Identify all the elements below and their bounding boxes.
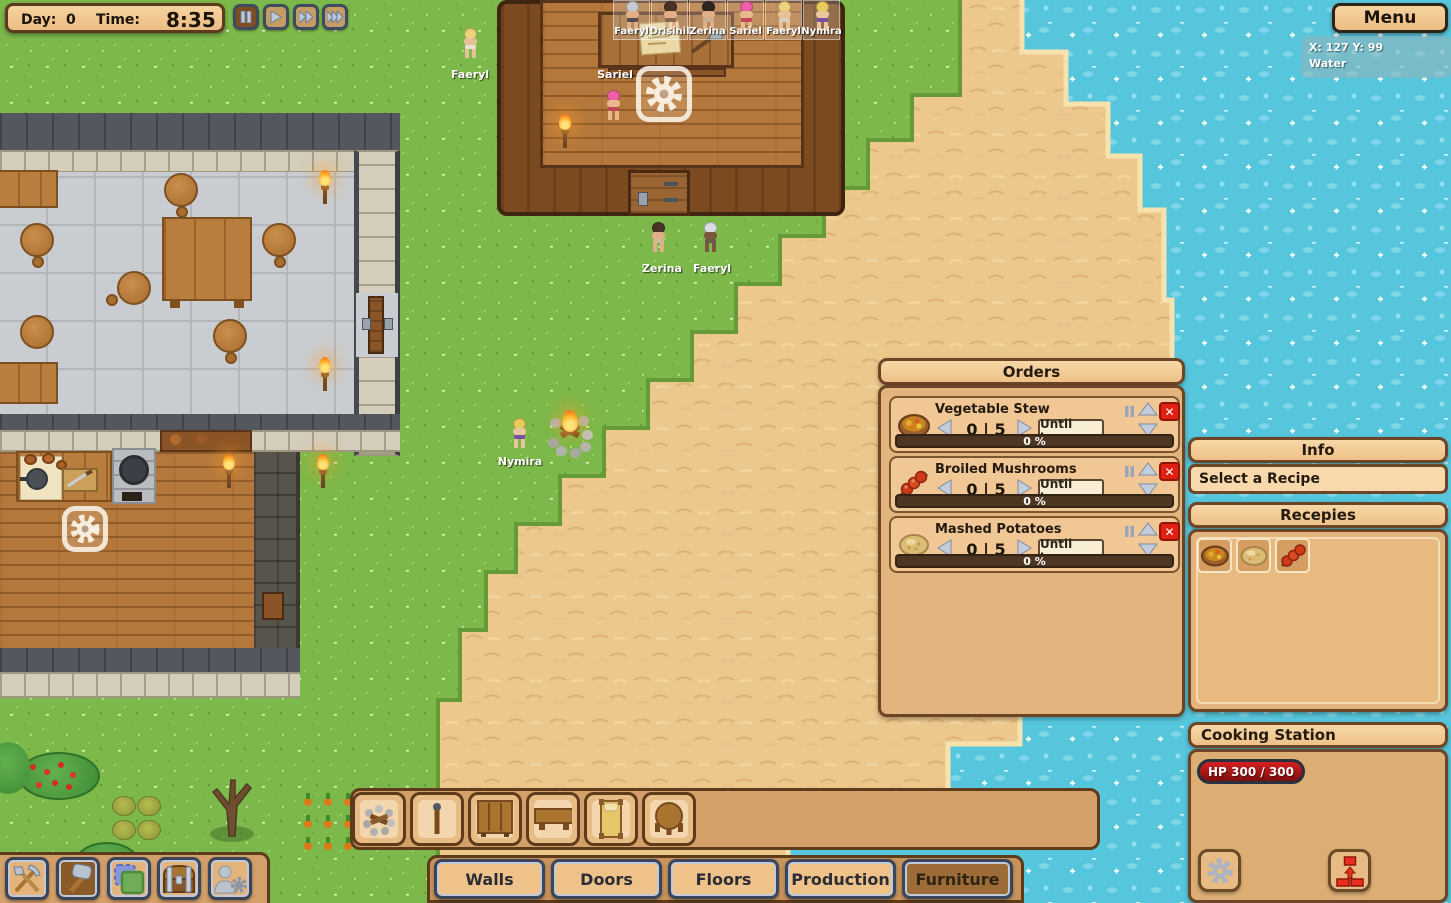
dresser-icon: [476, 800, 514, 838]
menu-button[interactable]: Menu: [1332, 3, 1448, 33]
order-row: Mashed Potatoes ✕ 0 | 5 Until have 0 %: [889, 516, 1180, 573]
long-table: [0, 362, 58, 404]
order-row: Broiled Mushrooms ✕ 0 | 5 Until have 0 %: [889, 456, 1180, 513]
wall-torch: [560, 122, 570, 148]
round-table: [213, 319, 247, 353]
colonist-slot-zerina[interactable]: Zerina: [689, 0, 726, 40]
order-name: Broiled Mushrooms: [935, 462, 1077, 477]
stool: [274, 256, 286, 268]
cancel-order-button[interactable]: ✕: [1159, 402, 1180, 421]
round-table: [262, 223, 296, 257]
table-leg: [170, 299, 180, 308]
tool-harvest[interactable]: [5, 857, 49, 900]
pause-button[interactable]: [233, 4, 259, 30]
kitchen-east-wall: [254, 452, 300, 672]
order-progress-bar: 0 %: [895, 434, 1174, 448]
build-item-torch[interactable]: [410, 792, 464, 846]
campfire[interactable]: [548, 410, 592, 454]
round-table: [117, 271, 151, 305]
tool-build[interactable]: [56, 857, 100, 900]
wall-torch: [318, 462, 328, 488]
shelf-pot: [196, 434, 207, 445]
dining-north-wall: [0, 113, 400, 152]
info-panel-body: Select a Recipe: [1188, 464, 1448, 494]
game-screen: Faeryl Sariel Zerina Faeryl Nymira Faery…: [0, 0, 1451, 903]
fast-forward-button[interactable]: [293, 4, 319, 30]
gear-icon: [67, 511, 103, 547]
move-order-up-button[interactable]: [1138, 522, 1158, 536]
tool-zones[interactable]: [107, 857, 151, 900]
order-progress-bar: 0 %: [895, 554, 1174, 568]
round-table: [20, 223, 54, 257]
chest-icon: [161, 863, 197, 895]
person-gear-icon: [212, 863, 248, 895]
station-panel: HP 300 / 300: [1188, 749, 1448, 903]
round-table: [164, 173, 198, 207]
build-item-campfire[interactable]: [352, 792, 406, 846]
tab-furniture[interactable]: Furniture: [902, 859, 1013, 899]
time-label: Time:: [96, 12, 140, 28]
tile-tooltip: X: 127 Y: 99 Water: [1301, 36, 1451, 78]
zones-icon: [112, 862, 146, 896]
colonist-name: Faeryl: [766, 26, 801, 37]
time-value: 8:35: [166, 8, 216, 32]
fast-forward-icon: [299, 11, 313, 23]
door-hinge: [664, 198, 678, 202]
shelf-pot: [170, 434, 181, 445]
character-zerina[interactable]: [649, 222, 667, 254]
tooltip-terrain: Water: [1309, 57, 1443, 70]
wall-torch: [320, 178, 330, 204]
door-hinge: [664, 182, 678, 186]
character-name-label: Faeryl: [451, 68, 489, 81]
kitchen-south-wall: [0, 648, 300, 672]
wall-torch: [224, 462, 234, 488]
campfire-icon: [361, 801, 397, 837]
oven-mouth: [122, 492, 142, 501]
info-message: Select a Recipe: [1199, 471, 1320, 487]
character-name-label: Faeryl: [693, 262, 731, 275]
cancel-order-button[interactable]: ✕: [1159, 522, 1180, 541]
tool-stockpile[interactable]: [157, 857, 201, 900]
move-order-up-button[interactable]: [1138, 402, 1158, 416]
vegetable-stew-icon: [1200, 543, 1230, 569]
table-leg: [234, 299, 244, 308]
pause-order-icon[interactable]: [1124, 526, 1135, 537]
pan-handle: [20, 477, 28, 481]
clay-pot: [24, 454, 37, 465]
wall-torch: [320, 365, 330, 391]
day-label: Day:: [21, 12, 56, 28]
character-sariel[interactable]: [604, 90, 622, 122]
stool: [176, 206, 188, 218]
colonist-slot-sariel[interactable]: Sariel: [727, 0, 764, 40]
orders-panel: Vegetable Stew ✕ 0 | 5 Until have 0 % Br…: [878, 385, 1185, 717]
fastest-forward-icon: [327, 11, 344, 23]
dead-tree: [200, 768, 264, 844]
build-item-bed[interactable]: [584, 792, 638, 846]
tab-label: Production: [791, 870, 889, 889]
cauldron: [119, 455, 149, 485]
long-table: [0, 170, 58, 208]
order-row: Vegetable Stew ✕ 0 | 5 Until have 0 %: [889, 396, 1180, 453]
character-name-label: Sariel: [597, 68, 633, 81]
cancel-order-button[interactable]: ✕: [1159, 462, 1180, 481]
colonist-name: Nymira: [801, 26, 841, 37]
berry-bush: [18, 752, 100, 800]
menu-label: Menu: [1364, 8, 1417, 28]
shrub: [112, 820, 136, 840]
order-progress-value: 0 %: [1023, 495, 1046, 508]
orders-panel-header: Orders: [878, 358, 1185, 385]
torch-icon: [430, 802, 444, 836]
play-icon: [270, 11, 282, 23]
hp-value: 300 / 300: [1231, 765, 1294, 779]
pause-order-icon[interactable]: [1124, 466, 1135, 477]
station-settings-button[interactable]: [1198, 849, 1241, 892]
stool: [32, 256, 44, 268]
tab-label: Furniture: [915, 870, 999, 889]
gear-icon: [1204, 855, 1236, 887]
recipes-title: Recepies: [1280, 506, 1356, 524]
order-name: Vegetable Stew: [935, 402, 1050, 417]
time-panel: Day: 0 Time: 8:35: [5, 3, 225, 33]
tab-floors[interactable]: Floors: [668, 859, 779, 899]
mashed-potatoes-icon: [1239, 543, 1269, 569]
info-title: Info: [1301, 441, 1334, 459]
cooking-station-selection-overlay: [62, 506, 108, 552]
play-button[interactable]: [263, 4, 289, 30]
kitchen-east-door[interactable]: [262, 592, 284, 620]
build-item-round-table[interactable]: [642, 792, 696, 846]
shrub: [137, 796, 161, 816]
character-nymira[interactable]: [510, 418, 528, 450]
tab-label: Floors: [696, 870, 752, 889]
recipes-grid: [1196, 537, 1440, 704]
move-order-up-button[interactable]: [1138, 462, 1158, 476]
character-faeryl[interactable]: [461, 28, 479, 60]
tooltip-coordinates: X: 127 Y: 99: [1309, 41, 1443, 54]
character-name-label: Zerina: [642, 262, 682, 275]
broiled-mushrooms-icon: [1278, 542, 1308, 570]
character-faeryl-2[interactable]: [701, 222, 719, 254]
hp-label: HP: [1208, 765, 1227, 779]
pause-order-icon[interactable]: [1124, 406, 1135, 417]
door-latch: [638, 192, 648, 206]
clay-pot: [42, 453, 55, 464]
info-panel-header: Info: [1188, 437, 1448, 463]
large-table: [162, 217, 252, 301]
hp-bar: HP 300 / 300: [1197, 759, 1305, 784]
stool: [225, 352, 237, 364]
round-table-icon: [651, 801, 687, 837]
tab-label: Doors: [580, 870, 633, 889]
tool-colonists[interactable]: [208, 857, 252, 900]
colonist-slot-faeryl-2[interactable]: Faeryl: [765, 0, 802, 40]
shrub: [112, 796, 136, 816]
recipe-mashed-potatoes-button[interactable]: [1236, 538, 1271, 573]
knife-icon: [64, 470, 96, 490]
hammer-icon: [61, 863, 95, 895]
workshop-selection-overlay: [636, 66, 692, 122]
door-hinge: [384, 318, 393, 330]
station-panel-header: Cooking Station: [1188, 722, 1448, 748]
colonist-slot-nymira[interactable]: Nymira: [803, 0, 840, 40]
build-item-bench-table[interactable]: [526, 792, 580, 846]
kitchen-south-wall-cap: [0, 672, 300, 698]
station-title: Cooking Station: [1201, 726, 1336, 744]
tab-doors[interactable]: Doors: [551, 859, 662, 899]
colonist-name: Drisinil: [649, 26, 689, 37]
priority-structure-icon: [1334, 855, 1366, 887]
dining-north-wall-cap: [0, 150, 400, 173]
order-progress-value: 0 %: [1023, 435, 1046, 448]
gear-icon: [641, 71, 687, 117]
build-item-dresser[interactable]: [468, 792, 522, 846]
day-value: 0: [66, 12, 76, 28]
colonist-name: Faeryl: [614, 26, 649, 37]
station-priority-button[interactable]: [1328, 849, 1371, 892]
bench-table-icon: [534, 805, 572, 833]
round-table: [20, 315, 54, 349]
tab-production[interactable]: Production: [785, 859, 896, 899]
order-name: Mashed Potatoes: [935, 522, 1062, 537]
orders-title: Orders: [1003, 363, 1060, 381]
stool: [106, 294, 118, 306]
door-hinge: [362, 318, 371, 330]
recipes-panel-header: Recepies: [1188, 502, 1448, 528]
character-name-label: Nymira: [498, 455, 542, 468]
tab-label: Walls: [465, 870, 513, 889]
colonist-name: Sariel: [729, 26, 762, 37]
frying-pan: [26, 468, 48, 490]
pickaxe-axe-icon: [10, 863, 44, 895]
colonist-name: Zerina: [689, 26, 725, 37]
fastest-forward-button[interactable]: [322, 4, 348, 30]
tab-walls[interactable]: Walls: [434, 859, 545, 899]
order-progress-value: 0 %: [1023, 555, 1046, 568]
bed-icon: [598, 799, 624, 839]
recipe-vegetable-stew-button[interactable]: [1197, 538, 1232, 573]
recipe-broiled-mushrooms-button[interactable]: [1275, 538, 1310, 573]
order-progress-bar: 0 %: [895, 494, 1174, 508]
pause-icon: [240, 11, 252, 23]
colonist-slot-faeryl[interactable]: Faeryl: [613, 0, 650, 40]
colonist-slot-drisinil[interactable]: Drisinil: [651, 0, 688, 40]
shrub: [137, 820, 161, 840]
